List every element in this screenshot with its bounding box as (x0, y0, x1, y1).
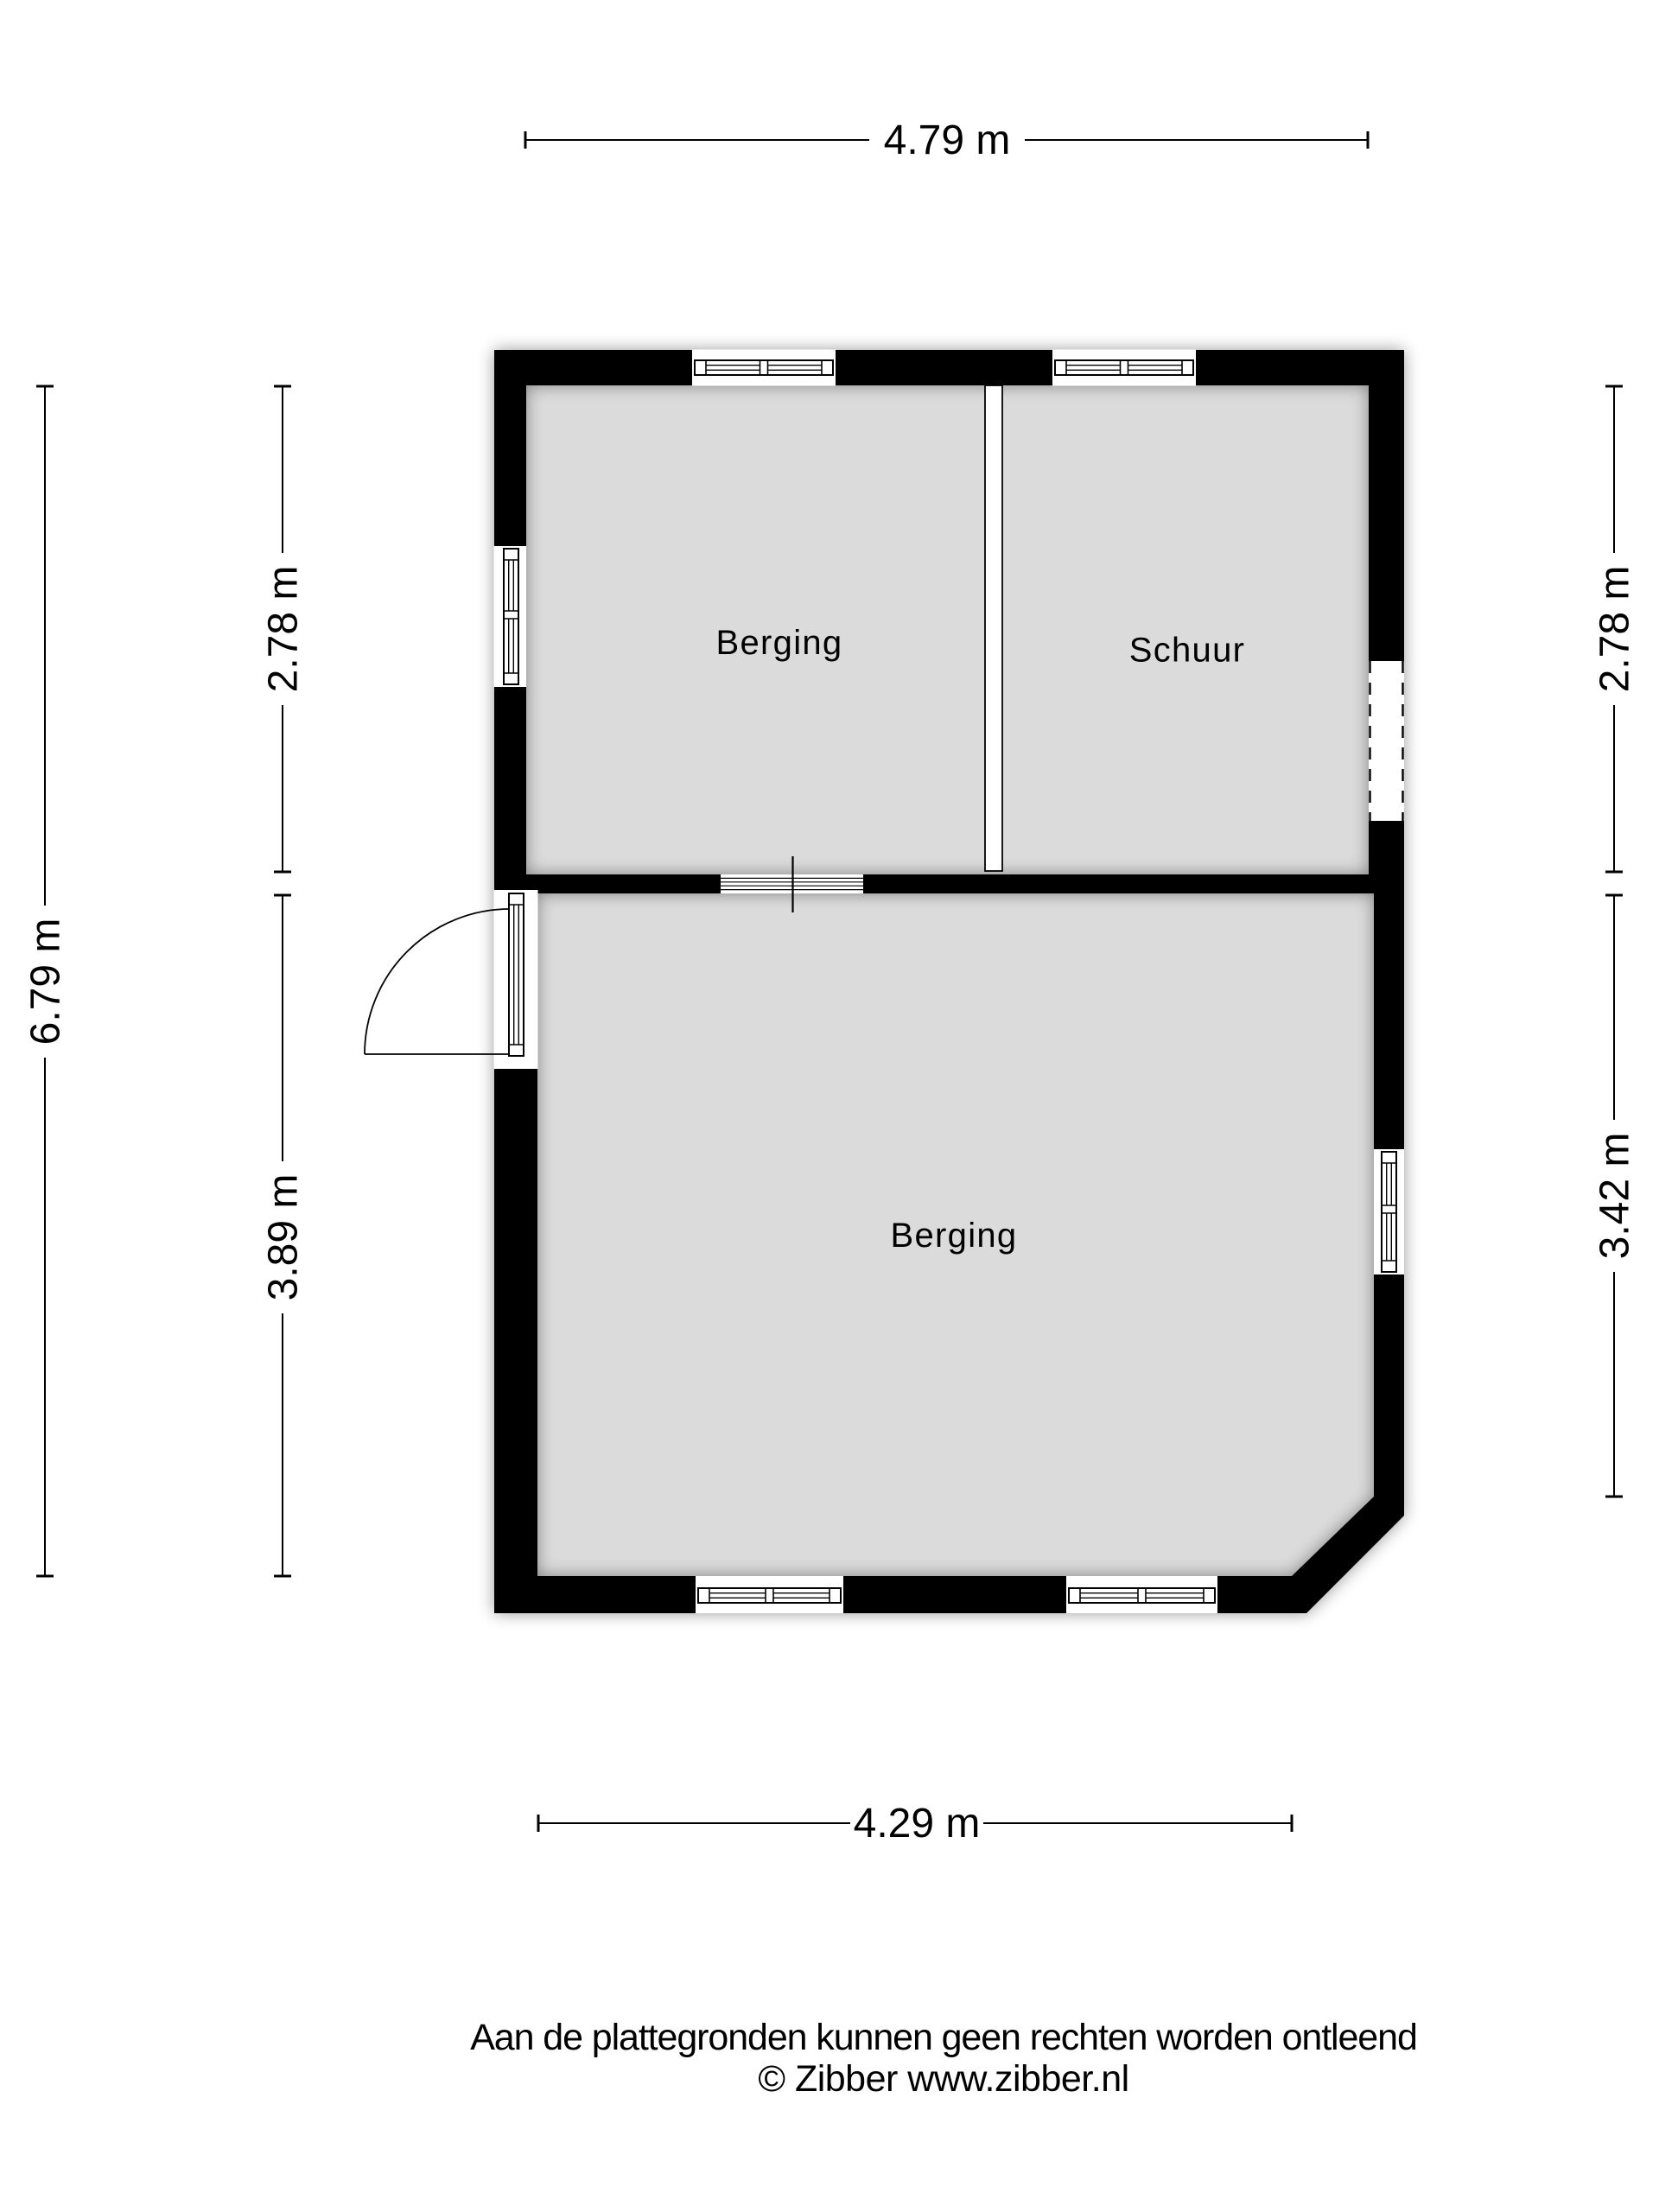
svg-text:Schuur: Schuur (1129, 632, 1246, 670)
svg-text:2.78 m: 2.78 m (261, 566, 307, 693)
svg-text:© Zibber www.zibber.nl: © Zibber www.zibber.nl (758, 2058, 1128, 2100)
svg-text:2.78 m: 2.78 m (1592, 566, 1638, 693)
svg-text:6.79 m: 6.79 m (23, 918, 69, 1046)
svg-text:3.42 m: 3.42 m (1592, 1133, 1638, 1260)
svg-text:3.89 m: 3.89 m (261, 1174, 307, 1301)
svg-text:4.29 m: 4.29 m (854, 1801, 981, 1847)
svg-text:Berging: Berging (716, 624, 843, 662)
svg-text:Aan de plattegronden kunnen ge: Aan de plattegronden kunnen geen rechten… (470, 2017, 1417, 2058)
svg-text:Berging: Berging (891, 1217, 1018, 1255)
svg-text:4.79 m: 4.79 m (884, 118, 1011, 163)
